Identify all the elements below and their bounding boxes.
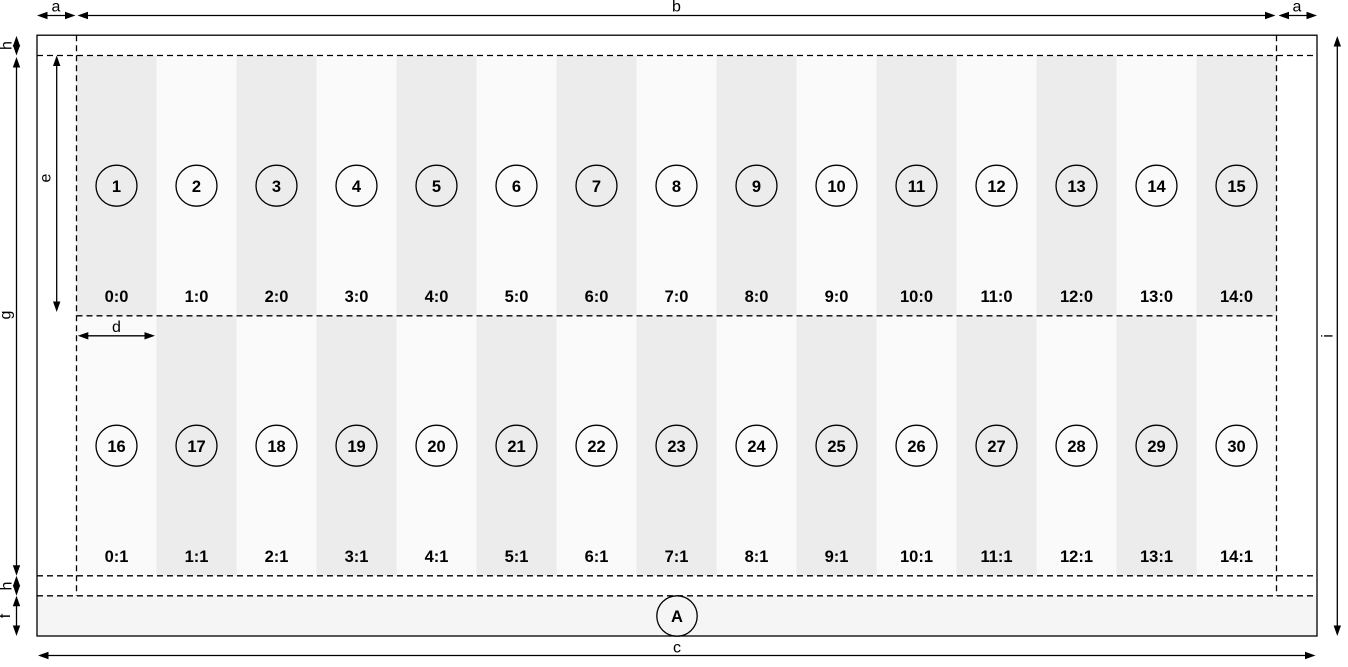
svg-text:19: 19 [347,438,365,456]
svg-text:8:0: 8:0 [745,288,769,306]
svg-text:22: 22 [587,438,605,456]
svg-text:11:0: 11:0 [980,288,1012,306]
svg-text:13:1: 13:1 [1140,548,1173,566]
svg-text:a: a [52,0,61,16]
svg-text:17: 17 [187,438,205,456]
svg-text:18: 18 [267,438,285,456]
svg-text:6:0: 6:0 [585,288,609,306]
svg-text:A: A [671,608,683,626]
svg-text:16: 16 [107,438,125,456]
svg-text:28: 28 [1067,438,1085,456]
svg-text:3:0: 3:0 [345,288,369,306]
svg-text:14:1: 14:1 [1220,548,1253,566]
svg-text:11:1: 11:1 [980,548,1012,566]
svg-text:a: a [1293,0,1302,16]
svg-text:3: 3 [272,178,281,196]
svg-text:2:0: 2:0 [265,288,289,306]
svg-text:10:0: 10:0 [900,288,933,306]
svg-text:9: 9 [752,178,761,196]
svg-text:21: 21 [507,438,525,456]
svg-text:1:1: 1:1 [185,548,209,566]
svg-text:25: 25 [827,438,845,456]
svg-text:12:0: 12:0 [1060,288,1093,306]
svg-text:b: b [672,0,681,16]
svg-text:30: 30 [1227,438,1245,456]
svg-text:12: 12 [987,178,1005,196]
svg-text:g: g [0,311,15,320]
svg-text:0:1: 0:1 [105,548,129,566]
svg-text:e: e [38,173,55,182]
svg-text:9:0: 9:0 [825,288,849,306]
svg-text:24: 24 [747,438,766,456]
svg-text:i: i [1320,334,1337,338]
svg-text:23: 23 [667,438,685,456]
svg-text:13:0: 13:0 [1140,288,1173,306]
svg-text:8:1: 8:1 [745,548,769,566]
svg-text:10:1: 10:1 [900,548,933,566]
svg-text:9:1: 9:1 [825,548,849,566]
svg-text:10: 10 [827,178,845,196]
svg-text:11: 11 [908,178,925,196]
svg-text:h: h [0,41,16,50]
svg-text:4: 4 [352,178,362,196]
svg-text:2:1: 2:1 [265,548,289,566]
svg-text:7:0: 7:0 [665,288,689,306]
svg-text:14:0: 14:0 [1220,288,1253,306]
svg-text:6: 6 [512,178,521,196]
svg-text:h: h [0,582,16,591]
svg-text:1:0: 1:0 [185,288,209,306]
svg-text:5: 5 [432,178,441,196]
svg-text:7:1: 7:1 [665,548,689,566]
svg-text:4:1: 4:1 [425,548,449,566]
svg-text:8: 8 [672,178,681,196]
svg-text:3:1: 3:1 [345,548,369,566]
svg-text:7: 7 [592,178,601,196]
svg-text:27: 27 [987,438,1005,456]
svg-text:20: 20 [427,438,445,456]
svg-text:13: 13 [1067,178,1085,196]
svg-text:29: 29 [1147,438,1165,456]
svg-text:f: f [0,613,14,618]
svg-text:5:1: 5:1 [505,548,529,566]
svg-text:15: 15 [1227,178,1245,196]
svg-text:12:1: 12:1 [1060,548,1093,566]
svg-text:2: 2 [192,178,201,196]
svg-text:14: 14 [1147,178,1166,196]
svg-text:d: d [112,319,121,336]
svg-text:1: 1 [112,178,121,196]
svg-text:0:0: 0:0 [105,288,129,306]
svg-text:26: 26 [907,438,925,456]
svg-text:c: c [673,640,681,657]
svg-text:6:1: 6:1 [585,548,609,566]
svg-text:5:0: 5:0 [505,288,529,306]
svg-text:4:0: 4:0 [425,288,449,306]
